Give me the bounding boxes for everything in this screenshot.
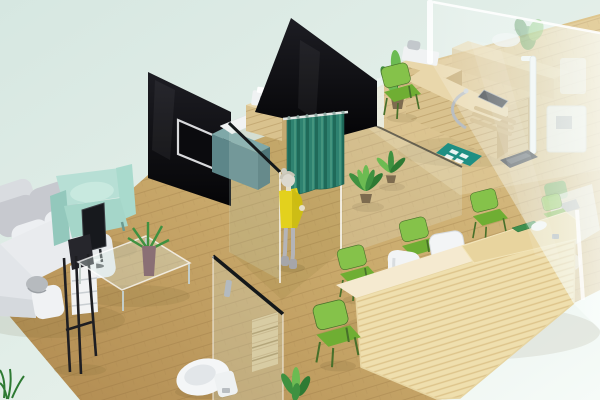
person-boot — [281, 256, 289, 266]
person-boot — [289, 259, 297, 269]
glass-wall-edge-left — [427, 0, 433, 64]
panel2-reflection — [298, 40, 320, 120]
person-hair-bun — [281, 168, 287, 174]
curtain-fabric — [287, 112, 344, 196]
person-hand — [299, 205, 305, 211]
panel2-glass-edge — [377, 78, 384, 128]
render-stage: Isometric 3D interior render of a small … — [0, 0, 600, 400]
table-plant-vase — [142, 246, 156, 276]
toilet-flush-button — [222, 388, 230, 393]
scene-svg: Isometric 3D interior render of a small … — [0, 0, 600, 400]
